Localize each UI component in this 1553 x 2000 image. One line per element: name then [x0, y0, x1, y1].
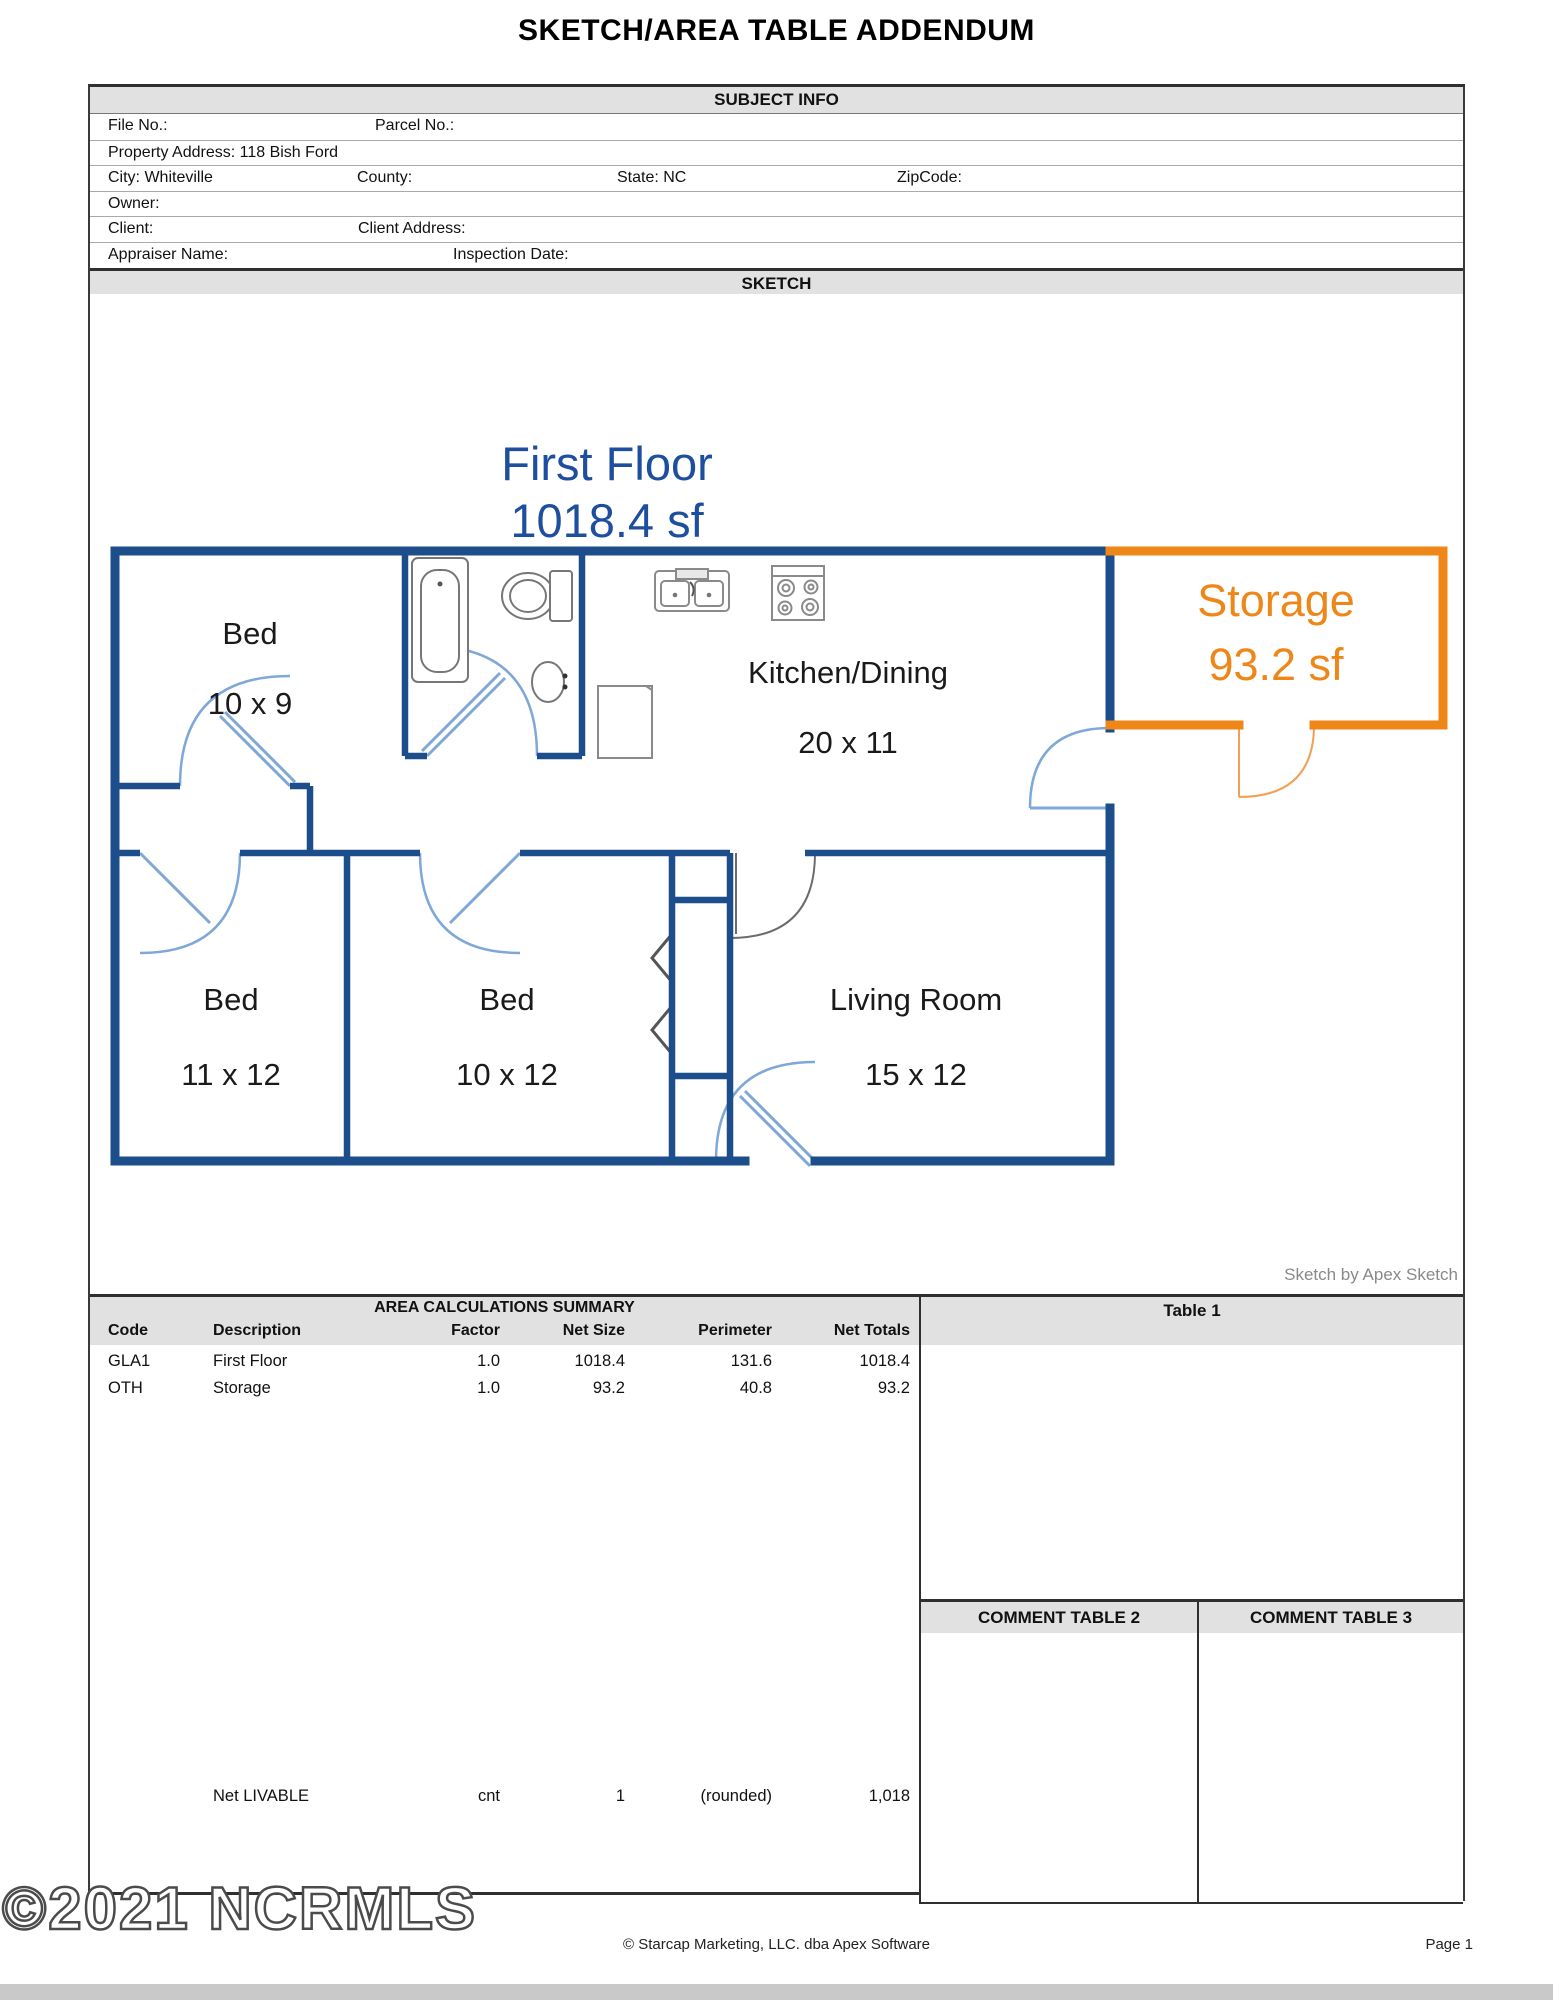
cell-perimeter: 131.6	[682, 1352, 772, 1371]
col-net-totals: Net Totals	[810, 1322, 910, 1340]
subject-info-header: SUBJECT INFO	[90, 87, 1463, 113]
kitchen-sink-icon	[655, 569, 729, 611]
cell-factor: 1.0	[430, 1352, 500, 1371]
comment-table-2: COMMENT TABLE 2	[921, 1602, 1197, 1902]
city-label: City: Whiteville	[108, 169, 213, 187]
net-livable-label: Net LIVABLE	[213, 1787, 309, 1806]
floor-area-label: 1018.4 sf	[510, 494, 704, 547]
room-bed1-name: Bed	[222, 616, 277, 651]
room-living-name: Living Room	[830, 982, 1002, 1017]
cell-net-totals: 93.2	[810, 1379, 910, 1398]
state-label: State: NC	[617, 169, 686, 187]
file-no-label: File No.:	[108, 117, 168, 135]
sketch-header: SKETCH	[90, 268, 1463, 294]
room-kitchen-name: Kitchen/Dining	[748, 655, 948, 690]
floor-title: First Floor	[501, 437, 713, 490]
room-kitchen-dims: 20 x 11	[798, 725, 897, 760]
subject-row-city: City: Whiteville County: State: NC ZipCo…	[90, 165, 1463, 191]
ncrmls-watermark: ©2021 NCRMLS	[2, 1874, 477, 1943]
cell-factor: 1.0	[430, 1379, 500, 1398]
area-calculations-box: AREA CALCULATIONS SUMMARY Code Descripti…	[90, 1297, 919, 1895]
col-net-size: Net Size	[545, 1322, 625, 1340]
toilet-icon	[502, 571, 572, 621]
client-address-label: Client Address:	[358, 220, 466, 238]
cell-perimeter: 40.8	[682, 1379, 772, 1398]
room-bed3-dims: 10 x 12	[456, 1057, 558, 1092]
room-bed2-name: Bed	[203, 982, 258, 1017]
comment-tables: COMMENT TABLE 2 COMMENT TABLE 3	[921, 1599, 1463, 1902]
parcel-no-label: Parcel No.:	[375, 117, 454, 135]
table1-header: Table 1	[921, 1297, 1463, 1345]
room-storage-dims: 93.2 sf	[1208, 639, 1344, 690]
county-label: County:	[357, 169, 412, 187]
col-description: Description	[213, 1322, 301, 1340]
cell-net-size: 1018.4	[545, 1352, 625, 1371]
room-bed1-dims: 10 x 9	[208, 686, 292, 721]
subject-row-owner: Owner:	[90, 191, 1463, 217]
stove-icon	[772, 566, 824, 620]
comment-table-3-header: COMMENT TABLE 3	[1199, 1602, 1463, 1633]
comment-table-2-header: COMMENT TABLE 2	[921, 1602, 1197, 1633]
cell-net-size: 93.2	[545, 1379, 625, 1398]
area-calc-header: AREA CALCULATIONS SUMMARY	[90, 1297, 919, 1319]
net-livable-note: (rounded)	[682, 1787, 772, 1806]
subject-info-table: File No.: Parcel No.: Property Address: …	[90, 113, 1463, 268]
table-row: GLA1 First Floor 1.0 1018.4 131.6 1018.4	[90, 1349, 919, 1376]
room-bed2-dims: 11 x 12	[181, 1057, 280, 1092]
page-title: SKETCH/AREA TABLE ADDENDUM	[0, 14, 1553, 48]
area-calc-columns: Code Description Factor Net Size Perimet…	[90, 1319, 919, 1345]
cell-net-totals: 1018.4	[810, 1352, 910, 1371]
inspection-date-label: Inspection Date:	[453, 246, 569, 264]
net-livable-total: 1,018	[810, 1787, 910, 1806]
refrigerator-icon	[598, 686, 652, 758]
col-factor: Factor	[430, 1322, 500, 1340]
subject-row-address: Property Address: 118 Bish Ford	[90, 140, 1463, 166]
bottom-gray-bar	[0, 1984, 1553, 2000]
subject-row-client: Client: Client Address:	[90, 216, 1463, 242]
property-address-label: Property Address: 118 Bish Ford	[108, 144, 338, 162]
table-row: OTH Storage 1.0 93.2 40.8 93.2	[90, 1376, 919, 1403]
appraiser-name-label: Appraiser Name:	[108, 246, 228, 264]
floor-plan: First Floor 1018.4 sf	[90, 294, 1463, 1294]
footer-copyright: © Starcap Marketing, LLC. dba Apex Softw…	[0, 1936, 1553, 1953]
client-label: Client:	[108, 220, 153, 238]
sketch-area: First Floor 1018.4 sf	[90, 294, 1463, 1294]
cell-code: OTH	[108, 1379, 143, 1398]
addendum-document: SUBJECT INFO File No.: Parcel No.: Prope…	[88, 84, 1465, 1901]
owner-label: Owner:	[108, 195, 160, 213]
net-livable-row: Net LIVABLE cnt 1 (rounded) 1,018	[90, 1784, 919, 1811]
net-livable-size: 1	[545, 1787, 625, 1806]
subject-row-appraiser: Appraiser Name: Inspection Date:	[90, 242, 1463, 268]
cell-code: GLA1	[108, 1352, 150, 1371]
tables-section: AREA CALCULATIONS SUMMARY Code Descripti…	[90, 1294, 1463, 1901]
cell-description: First Floor	[213, 1352, 287, 1371]
room-living-dims: 15 x 12	[865, 1057, 967, 1092]
cell-description: Storage	[213, 1379, 271, 1398]
col-perimeter: Perimeter	[682, 1322, 772, 1340]
sketch-credit: Sketch by Apex Sketch	[1284, 1265, 1458, 1284]
footer-page-number: Page 1	[1425, 1936, 1473, 1953]
room-storage-name: Storage	[1197, 575, 1355, 626]
bathtub-icon	[412, 558, 468, 682]
subject-row-file: File No.: Parcel No.:	[90, 114, 1463, 140]
table1-box: Table 1 COMMENT TABLE 2 COMMENT TABLE 3	[919, 1297, 1463, 1904]
col-code: Code	[108, 1322, 148, 1340]
net-livable-factor: cnt	[430, 1787, 500, 1806]
storage-door	[1239, 725, 1314, 797]
room-bed3-name: Bed	[479, 982, 534, 1017]
zipcode-label: ZipCode:	[897, 169, 962, 187]
comment-table-3: COMMENT TABLE 3	[1197, 1602, 1463, 1902]
